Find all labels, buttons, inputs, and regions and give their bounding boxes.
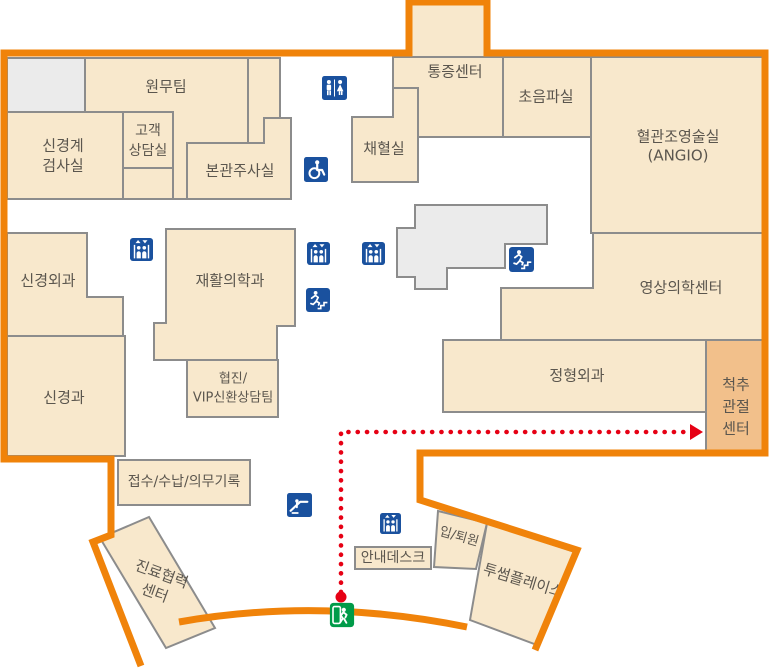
room-pain-center-label: 통증센터 [427, 63, 482, 81]
wheelchair-access-icon [304, 157, 328, 182]
elevator-icon [362, 242, 385, 265]
room-spine-label-3: 센터 [722, 420, 750, 438]
room-pain-center-bump [406, 0, 490, 57]
room-spine-label-1: 척추 [722, 376, 750, 394]
room-ultrasound-label: 초음파실 [518, 88, 573, 106]
room-reception-label: 접수/수납/의무기록 [128, 474, 241, 490]
room-orthopedics-label: 정형외과 [549, 367, 604, 385]
room-customer-consult-label-1: 고객 [135, 123, 161, 139]
room-customer-consult [123, 112, 173, 168]
room-admin-team-label: 원무팀 [145, 78, 186, 96]
route-arrow-head [690, 424, 703, 440]
room-coop-vip-label-2: VIP신환상담팀 [193, 391, 273, 406]
restroom-icon [322, 76, 347, 100]
emergency-exit-icon [330, 603, 354, 627]
room-info-desk-label: 안내데스크 [361, 550, 426, 566]
emergency-stairs-icon [306, 288, 330, 312]
emergency-stairs-icon [509, 247, 534, 272]
elevator-icon [380, 513, 401, 534]
room-neuro-exam-label-1: 신경계 [42, 137, 83, 155]
room-neurosurgery-label: 신경외과 [20, 272, 75, 290]
room-neurology-label: 신경과 [43, 389, 85, 407]
elevator-icon [307, 242, 330, 265]
room-rehab-medicine [154, 229, 295, 360]
unlabeled-gray-area-topleft [7, 58, 85, 112]
room-angio-label-1: 혈관조영술실 [637, 128, 720, 146]
floor-plan-svg: 원무팀 신경계 검사실 고객 상담실 본관주사실 채혈실 통증센터 초음파실 혈… [0, 0, 772, 670]
escalator-icon [287, 493, 312, 517]
room-spine-label-2: 관절 [722, 398, 750, 416]
route-start-dot [336, 592, 347, 603]
room-neuro-exam [7, 112, 123, 199]
room-blood-collection-label: 채혈실 [363, 140, 404, 158]
room-coop-vip-label-1: 협진/ [219, 372, 248, 387]
room-main-injection-label: 본관주사실 [205, 162, 274, 180]
boundary-entrance-arc [179, 611, 467, 627]
room-blood-collection [352, 88, 418, 182]
room-care-coop-center [100, 517, 215, 648]
room-imaging-center [501, 233, 764, 340]
room-imaging-center-label: 영상의학센터 [640, 279, 723, 297]
room-rehab-medicine-label: 재활의학과 [195, 272, 264, 290]
room-neuro-exam-label-2: 검사실 [42, 157, 83, 175]
elevator-icon [130, 238, 153, 261]
floor-plan-canvas: 원무팀 신경계 검사실 고객 상담실 본관주사실 채혈실 통증센터 초음파실 혈… [0, 0, 772, 670]
room-angio-label-2: (ANGIO) [647, 147, 708, 165]
room-customer-consult-label-2: 상담실 [129, 143, 168, 159]
room-coop-vip [187, 360, 278, 417]
